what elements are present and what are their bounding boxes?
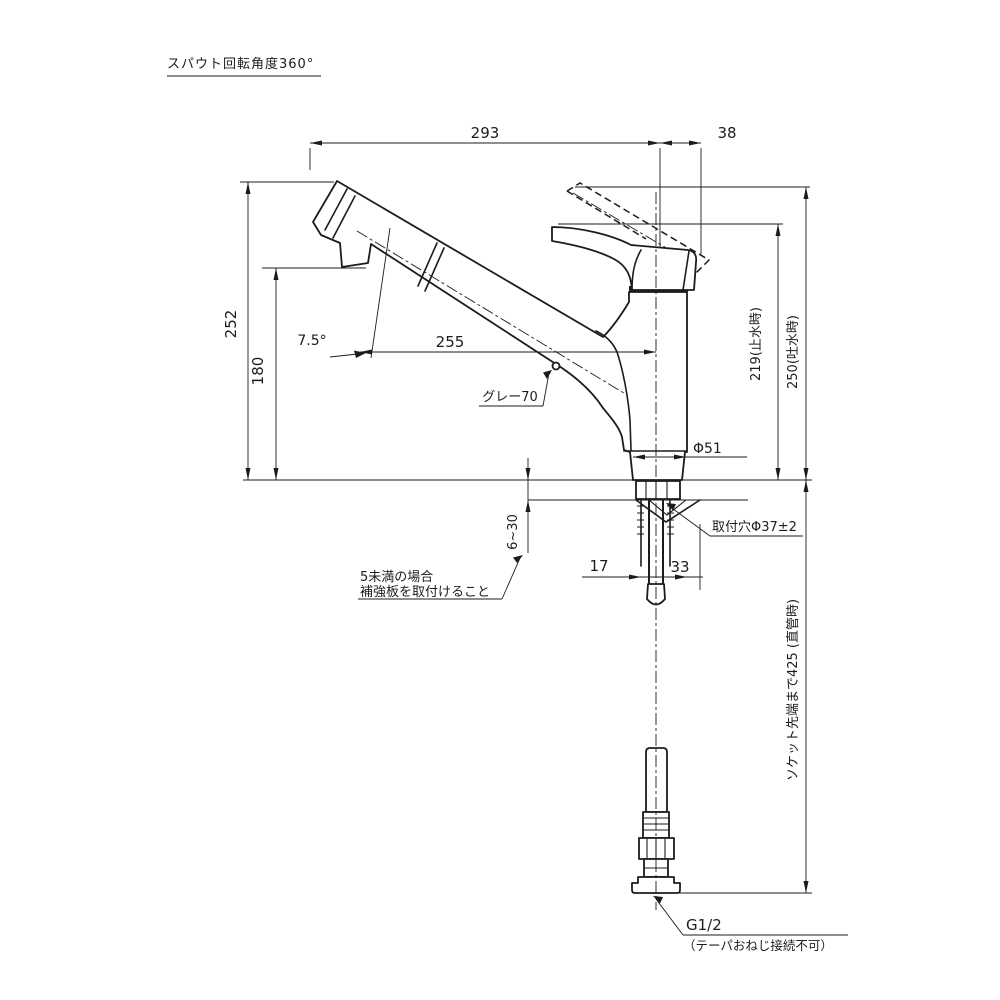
label-mounting-hole: 取付穴Φ37±2 <box>712 520 797 535</box>
dim-33: 33 <box>670 558 689 576</box>
dim-255: 255 <box>436 333 465 351</box>
spout-axis <box>357 231 627 395</box>
note-taper-thread: （テーパおねじ接続不可） <box>683 938 833 953</box>
dim-38: 38 <box>717 124 736 142</box>
faucet-outline <box>313 181 709 480</box>
gray-marking-point <box>553 363 560 370</box>
straight-pipe <box>646 748 667 812</box>
faucet-spec-drawing: スパウト回転角度360° 293 38 252 180 255 7.5° グレー… <box>0 0 1000 1000</box>
dim-deck-thickness: 6~30 <box>506 514 521 550</box>
note-reinforce-line1: 5未満の場合 <box>360 570 433 585</box>
dim-252: 252 <box>222 310 240 339</box>
dim-293: 293 <box>471 124 500 142</box>
dim-phi51: Φ51 <box>693 441 722 457</box>
dimension-lines <box>167 76 848 935</box>
label-gray-70: グレー70 <box>482 390 538 405</box>
lock-ring <box>636 481 680 499</box>
counter-section <box>243 480 812 500</box>
dim-180: 180 <box>249 357 267 386</box>
mounting-hardware <box>636 481 700 605</box>
dim-250-open: 250(吐水時) <box>786 315 801 389</box>
thread-marks <box>637 506 674 534</box>
lever-handle-closed <box>552 227 696 290</box>
note-reinforce-line2: 補強板を取付けること <box>360 585 490 600</box>
dim-angle-7-5: 7.5° <box>297 333 326 349</box>
dim-219-closed: 219(止水時) <box>749 307 764 381</box>
threaded-shank <box>641 500 670 566</box>
dim-socket-425: ソケット先端まで425 (直管時) <box>786 599 801 781</box>
labels: スパウト回転角度360° 293 38 252 180 255 7.5° グレー… <box>167 56 833 953</box>
label-thread-g12: G1/2 <box>686 916 722 934</box>
drawing-title: スパウト回転角度360° <box>167 56 314 72</box>
dim-17: 17 <box>589 557 608 575</box>
